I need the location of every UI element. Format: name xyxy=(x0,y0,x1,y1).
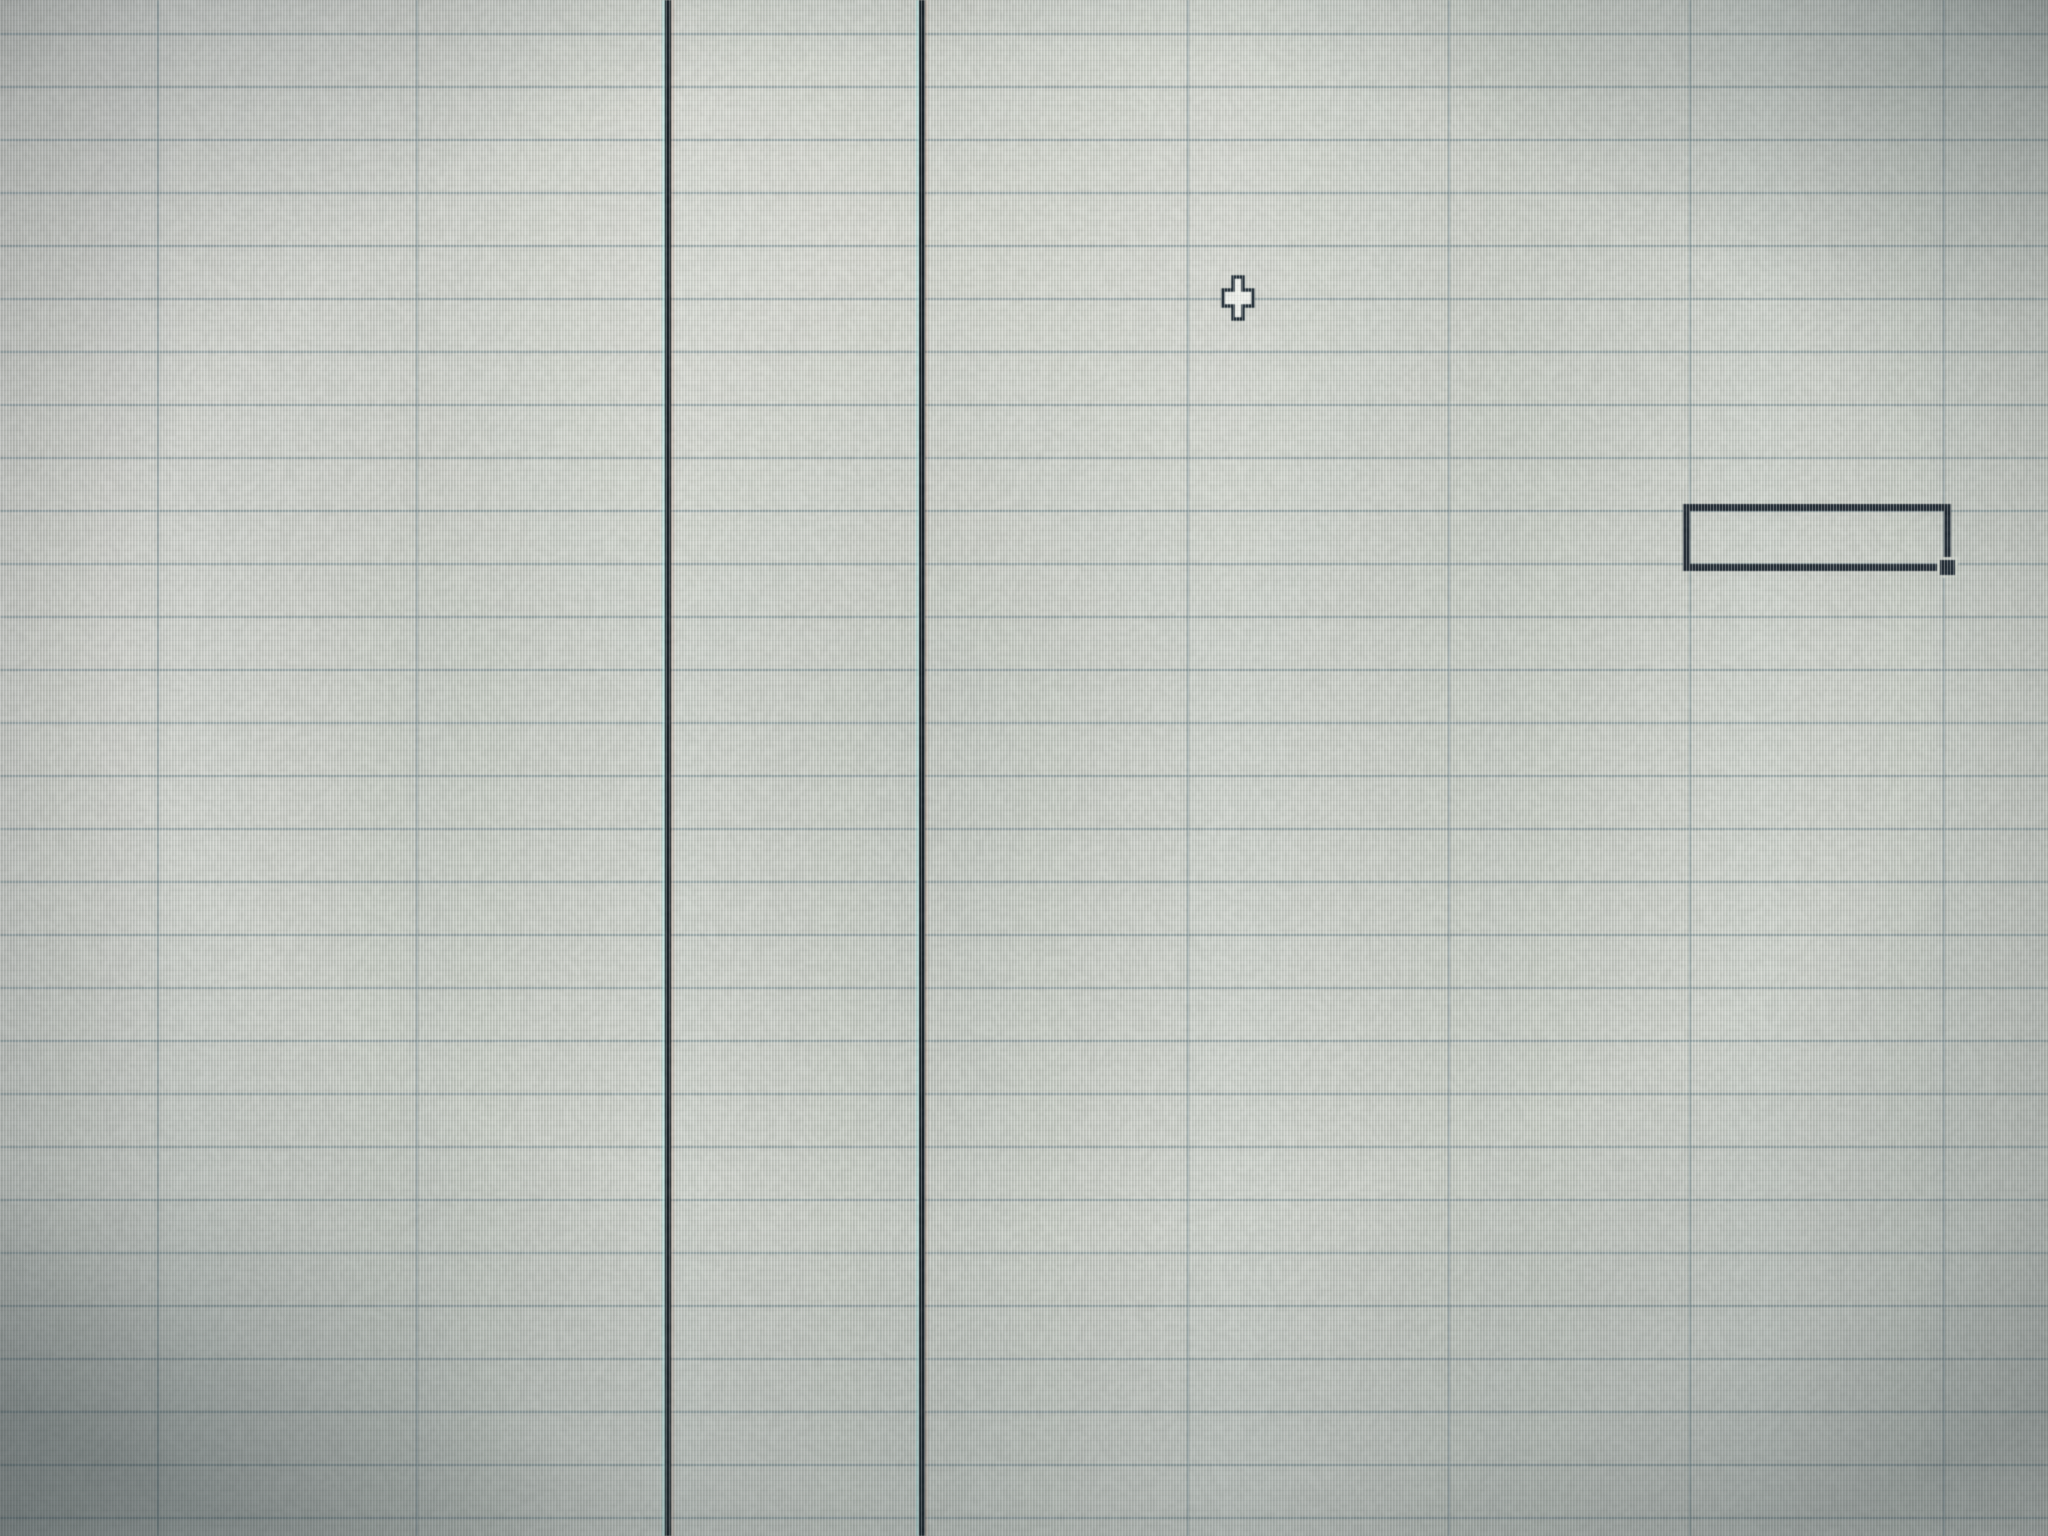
gridline-row xyxy=(0,33,2048,35)
gridline-row xyxy=(0,139,2048,141)
gridline-row xyxy=(0,298,2048,300)
gridline-row xyxy=(0,775,2048,777)
gridline-row xyxy=(0,1146,2048,1148)
page-break-line xyxy=(665,0,671,1536)
gridline-column xyxy=(1943,0,1945,1536)
gridline-row xyxy=(0,669,2048,671)
gridline-row xyxy=(0,1411,2048,1413)
gridline-row xyxy=(0,722,2048,724)
page-break-line xyxy=(919,0,925,1536)
gridline-row xyxy=(0,1464,2048,1466)
gridline-row xyxy=(0,828,2048,830)
gridline-row xyxy=(0,987,2048,989)
fill-handle[interactable] xyxy=(1940,560,1955,575)
gridline-row xyxy=(0,1093,2048,1095)
gridline-row xyxy=(0,881,2048,883)
gridline-row xyxy=(0,934,2048,936)
gridline-row xyxy=(0,1199,2048,1201)
gridline-row xyxy=(0,616,2048,618)
gridline-column xyxy=(1187,0,1189,1536)
gridline-row xyxy=(0,245,2048,247)
gridline-row xyxy=(0,1517,2048,1519)
gridline-row xyxy=(0,1305,2048,1307)
gridline-row xyxy=(0,351,2048,353)
gridline-row xyxy=(0,457,2048,459)
gridline-row xyxy=(0,86,2048,88)
gridline-row xyxy=(0,192,2048,194)
selected-cell-outline[interactable] xyxy=(1683,504,1951,571)
sheet-layer xyxy=(0,0,2048,1536)
gridline-column xyxy=(416,0,418,1536)
gridline-column xyxy=(1689,0,1691,1536)
gridline-column xyxy=(1448,0,1450,1536)
gridline-row xyxy=(0,1252,2048,1254)
gridline-row xyxy=(0,404,2048,406)
gridline-row xyxy=(0,1358,2048,1360)
gridline-row xyxy=(0,1040,2048,1042)
spreadsheet-canvas[interactable] xyxy=(0,0,2048,1536)
gridline-column xyxy=(157,0,159,1536)
